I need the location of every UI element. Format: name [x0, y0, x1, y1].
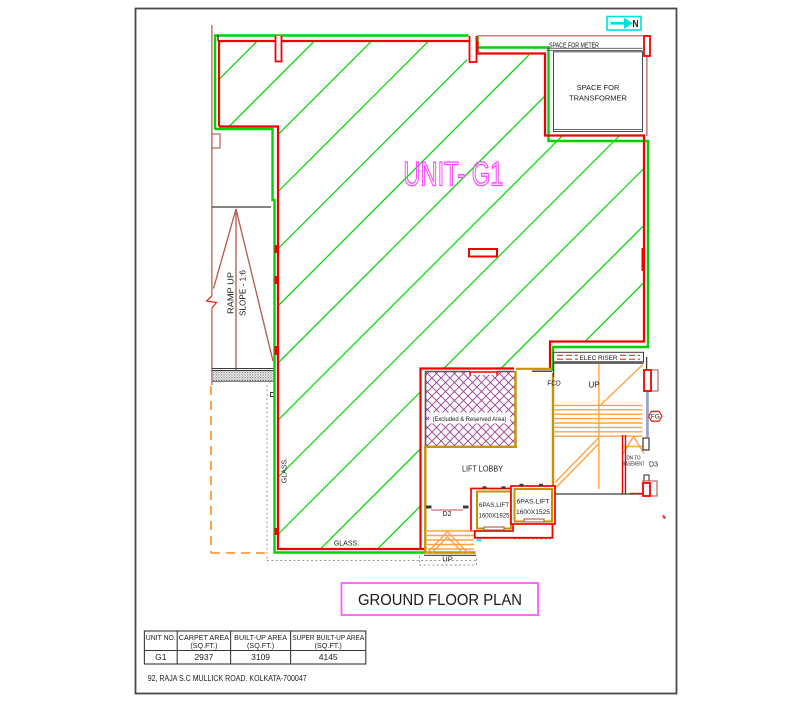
svg-text:TRANSFORMER: TRANSFORMER: [569, 94, 628, 103]
svg-text:GROUND FLOOR PLAN: GROUND FLOOR PLAN: [358, 592, 522, 609]
svg-text:UNIT NO.: UNIT NO.: [146, 633, 176, 642]
svg-text:92, RAJA S.C MULLICK ROAD. KOL: 92, RAJA S.C MULLICK ROAD. KOLKATA-70004…: [148, 673, 307, 683]
svg-text:D2: D2: [443, 511, 452, 518]
svg-text:RAMP UP: RAMP UP: [227, 272, 236, 314]
svg-text:FCD: FCD: [547, 379, 561, 388]
svg-text:4145: 4145: [319, 652, 338, 662]
svg-text:1600X1925: 1600X1925: [479, 513, 510, 520]
svg-text:UNIT- G1: UNIT- G1: [403, 156, 503, 194]
svg-text:BASEMENT: BASEMENT: [623, 462, 645, 468]
svg-text:ELEC RISER: ELEC RISER: [580, 356, 619, 362]
svg-text:UP: UP: [588, 381, 599, 390]
svg-text:UP: UP: [442, 555, 452, 564]
svg-text:(SQ.FT.): (SQ.FT.): [190, 641, 217, 650]
svg-text:G1: G1: [155, 652, 167, 662]
svg-text:N: N: [633, 18, 639, 30]
svg-text:(Excluded & Reserved Area): (Excluded & Reserved Area): [433, 416, 507, 423]
svg-text:GLASS.: GLASS.: [282, 458, 289, 483]
svg-text:6PAS.LIFT: 6PAS.LIFT: [479, 502, 509, 509]
svg-text:6PAS.LIFT: 6PAS.LIFT: [517, 499, 550, 506]
svg-text:(SQ.FT.): (SQ.FT.): [315, 641, 342, 650]
svg-text:SLOPE - 1:6: SLOPE - 1:6: [239, 269, 248, 316]
svg-text:SPACE FOR: SPACE FOR: [577, 83, 620, 92]
svg-text:LIFT LOBBY: LIFT LOBBY: [462, 464, 503, 474]
svg-text:D3: D3: [649, 462, 658, 469]
svg-text:SPACE FOR METER: SPACE FOR METER: [549, 43, 599, 50]
svg-text:FG: FG: [651, 414, 660, 421]
svg-text:(SQ.FT.): (SQ.FT.): [247, 641, 274, 650]
svg-text:2937: 2937: [194, 652, 213, 662]
svg-text:1600X1525: 1600X1525: [516, 509, 551, 516]
svg-text:3109: 3109: [251, 652, 270, 662]
svg-text:GLASS.: GLASS.: [334, 541, 359, 548]
